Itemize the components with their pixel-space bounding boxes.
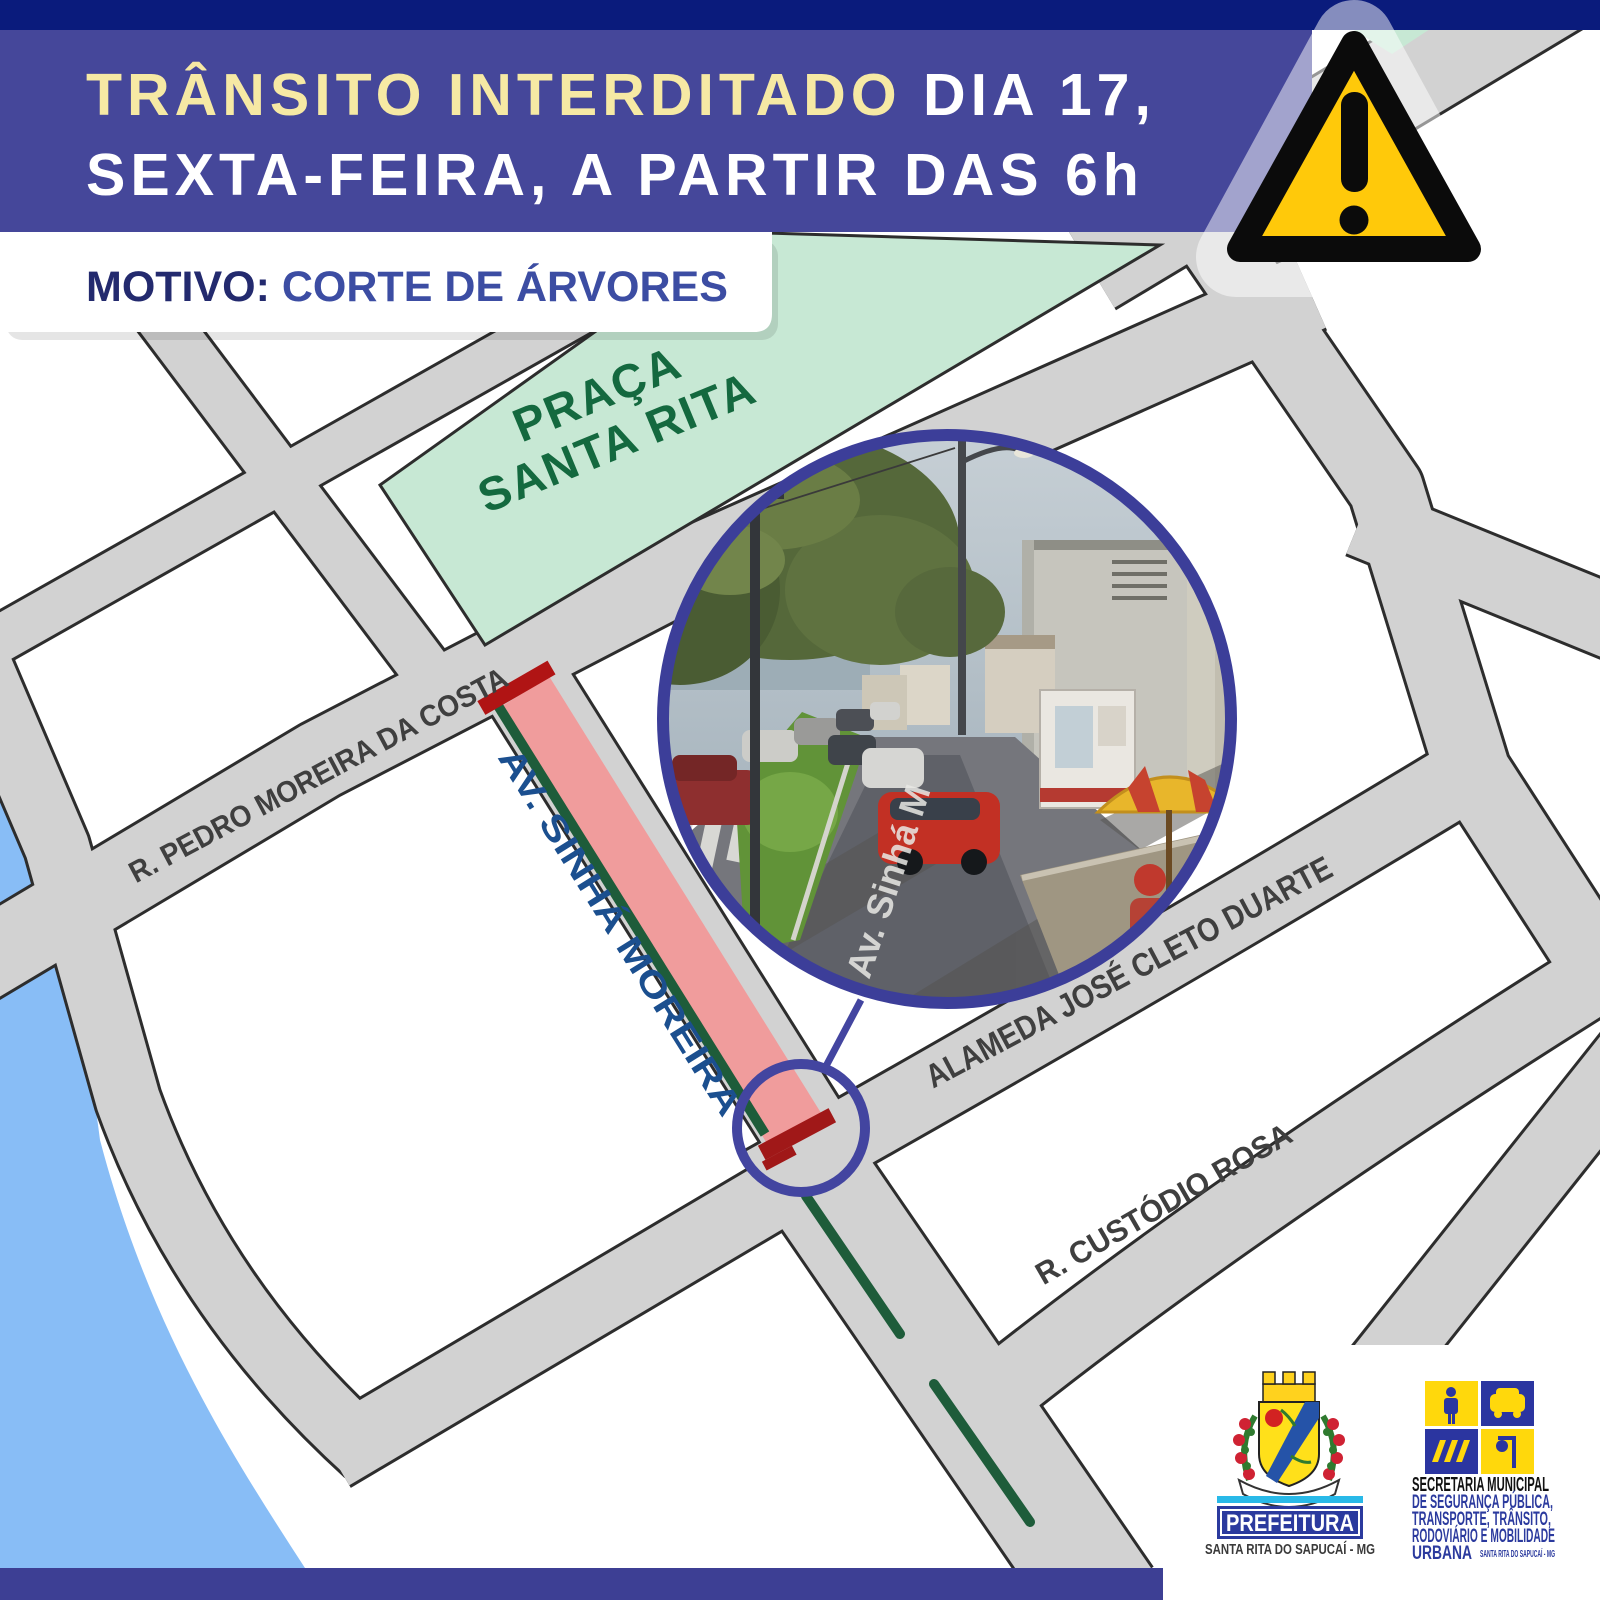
svg-text:PREFEITURA: PREFEITURA [1226, 1510, 1354, 1537]
svg-text:TRÂNSITO INTERDITADO DIA 17,: TRÂNSITO INTERDITADO DIA 17, [86, 61, 1156, 128]
svg-text:URBANA: URBANA [1412, 1543, 1472, 1564]
svg-text:SANTA RITA DO SAPUCAÍ - MG: SANTA RITA DO SAPUCAÍ - MG [1480, 1547, 1555, 1560]
svg-text:MOTIVO: CORTE DE ÁRVORES: MOTIVO: CORTE DE ÁRVORES [86, 263, 728, 311]
svg-text:SANTA RITA DO SAPUCAÍ - MG: SANTA RITA DO SAPUCAÍ - MG [1205, 1541, 1375, 1558]
svg-text:SEXTA-FEIRA, A PARTIR DAS 6h: SEXTA-FEIRA, A PARTIR DAS 6h [86, 142, 1144, 208]
